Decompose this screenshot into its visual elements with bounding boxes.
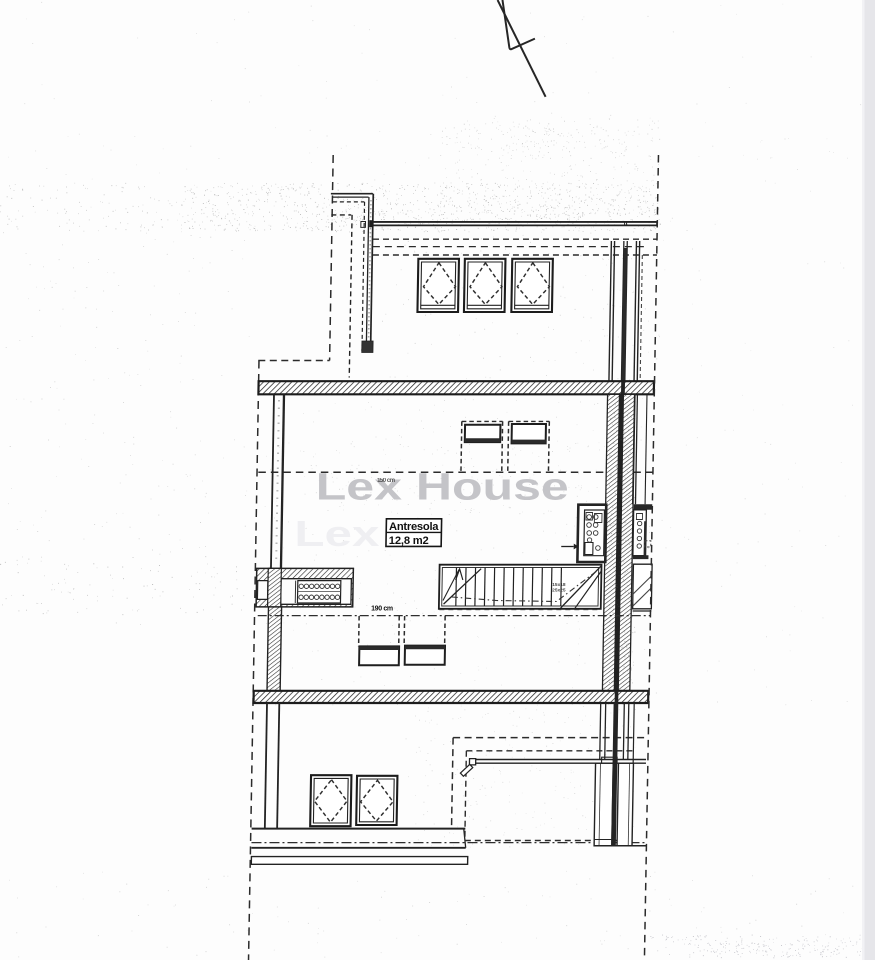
svg-text:Lex House: Lex House [316,467,569,509]
svg-text:15x18: 15x18 [552,582,566,588]
svg-text:25x25: 25x25 [552,588,566,594]
svg-text:12,8 m2: 12,8 m2 [389,535,429,547]
svg-text:Antresola: Antresola [389,521,439,533]
svg-text:150 cm: 150 cm [377,478,395,484]
svg-text:190 cm: 190 cm [371,605,393,612]
svg-text:Lex: Lex [294,513,379,554]
